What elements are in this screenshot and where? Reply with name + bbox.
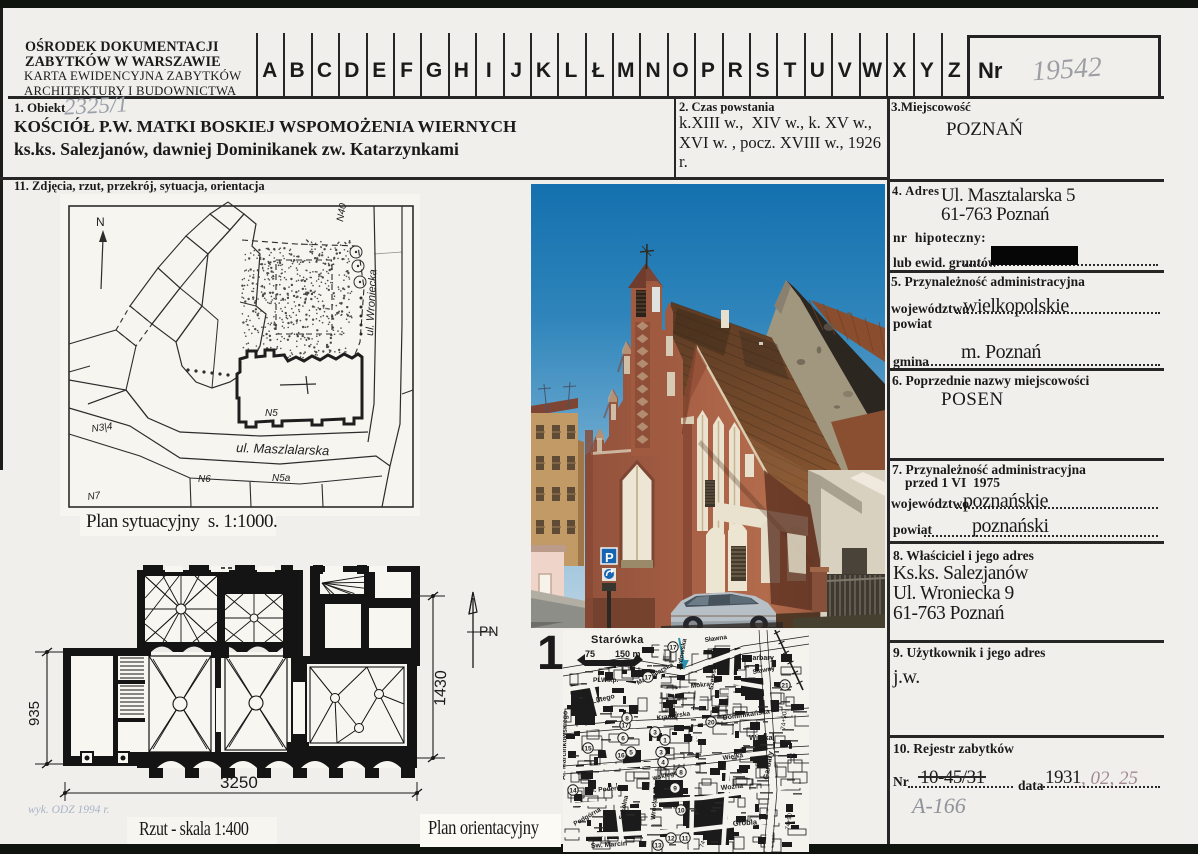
svg-text:20: 20 bbox=[707, 719, 715, 726]
svg-text:3: 3 bbox=[653, 729, 657, 736]
svg-text:P: P bbox=[605, 550, 614, 565]
svg-text:935: 935 bbox=[26, 701, 43, 726]
svg-text:N5a: N5a bbox=[272, 473, 291, 484]
svg-text:17: 17 bbox=[669, 644, 677, 651]
svg-text:Pl.Wlkp.: Pl.Wlkp. bbox=[593, 677, 618, 684]
svg-text:Grobla: Grobla bbox=[733, 817, 759, 828]
svg-text:17: 17 bbox=[644, 674, 652, 681]
svg-text:21: 21 bbox=[781, 682, 789, 689]
svg-text:3250: 3250 bbox=[220, 773, 258, 792]
svg-text:Garbary: Garbary bbox=[747, 655, 774, 662]
svg-text:N6: N6 bbox=[198, 474, 211, 485]
svg-text:3: 3 bbox=[659, 749, 663, 756]
svg-text:N: N bbox=[96, 215, 105, 229]
svg-text:PN: PN bbox=[479, 623, 498, 639]
svg-text:1: 1 bbox=[663, 737, 667, 744]
svg-text:6: 6 bbox=[621, 735, 625, 742]
svg-text:8: 8 bbox=[679, 769, 683, 776]
svg-text:13: 13 bbox=[654, 842, 662, 849]
svg-text:10: 10 bbox=[677, 807, 685, 814]
svg-text:Wielka: Wielka bbox=[749, 733, 774, 742]
svg-text:Starówka: Starówka bbox=[591, 634, 644, 646]
svg-text:N5: N5 bbox=[265, 408, 278, 419]
svg-text:8: 8 bbox=[625, 715, 629, 722]
svg-text:14: 14 bbox=[569, 787, 577, 794]
svg-text:75: 75 bbox=[585, 649, 595, 659]
svg-text:1430: 1430 bbox=[432, 670, 450, 706]
svg-text:4: 4 bbox=[661, 759, 665, 766]
svg-text:15: 15 bbox=[584, 745, 592, 752]
svg-text:12: 12 bbox=[667, 835, 675, 842]
svg-text:N7: N7 bbox=[87, 490, 102, 503]
svg-text:11: 11 bbox=[682, 835, 689, 842]
svg-text:9: 9 bbox=[673, 785, 677, 792]
svg-text:5: 5 bbox=[629, 749, 633, 756]
svg-text:16: 16 bbox=[617, 752, 625, 759]
